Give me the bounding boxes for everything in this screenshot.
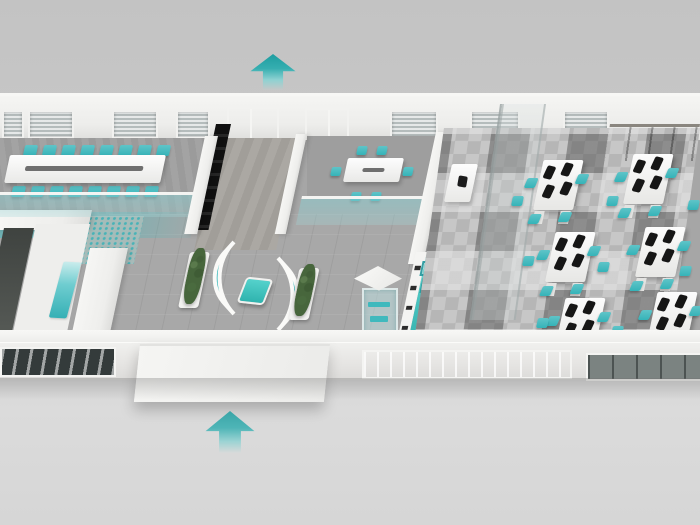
arrow-up-icon <box>249 54 297 90</box>
arrows-group <box>0 0 700 525</box>
office-floorplan-scene <box>0 0 700 525</box>
arrow-up-icon <box>204 411 256 453</box>
